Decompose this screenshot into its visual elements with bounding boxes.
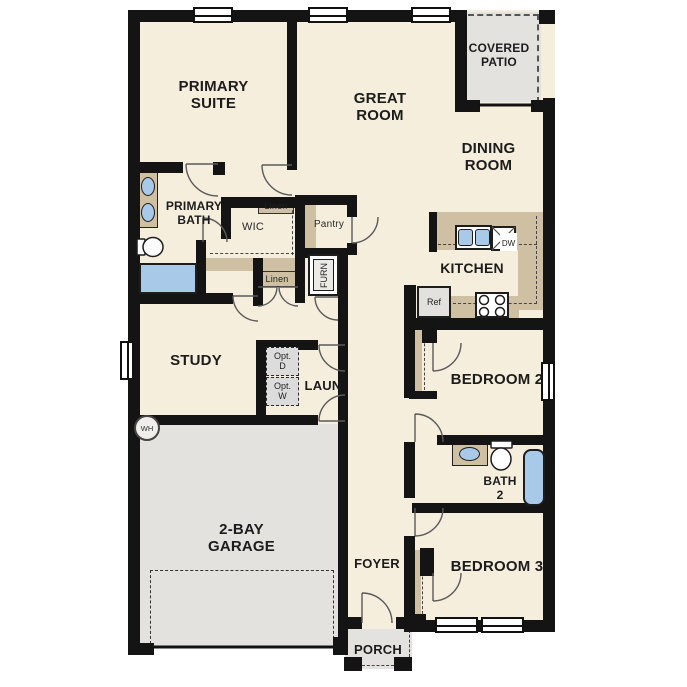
refrigerator-icon: Ref — [417, 286, 451, 318]
wall — [531, 100, 555, 112]
room-label-foyer: FOYER — [350, 556, 404, 571]
wall — [404, 285, 416, 330]
wic-rod-dashed — [292, 205, 293, 255]
room-label-great-room: GREAT ROOM — [348, 90, 412, 125]
window — [481, 617, 524, 633]
wall — [213, 162, 225, 175]
wall — [344, 657, 362, 671]
room-label-bath2: BATH 2 — [479, 475, 521, 503]
room-label-bedroom2: BEDROOM 2 — [427, 371, 567, 388]
dishwasher-label: DW — [500, 233, 517, 251]
wall — [408, 614, 426, 622]
room-label-wic: WIC — [234, 221, 272, 234]
water-heater-label: WH — [141, 424, 154, 433]
sink-icon — [141, 177, 155, 196]
room-label-primary-suite: PRIMARY SUITE — [161, 78, 266, 113]
room-label-garage: 2-BAY GARAGE — [194, 521, 289, 556]
optional-washer-label: Opt. W — [271, 382, 295, 401]
garage-door-dashed-area — [150, 570, 334, 644]
wall — [539, 10, 555, 24]
linen2-label: Linen — [256, 274, 298, 284]
pantry-label: Pantry — [305, 219, 353, 231]
room-label-laundry: LAUN — [300, 378, 346, 393]
linen1-label: Linen — [258, 201, 294, 211]
optional-washer: Opt. W — [266, 377, 299, 406]
wic-shelf-wall — [198, 258, 298, 271]
room-label-study: STUDY — [150, 352, 242, 369]
porch-dashed-right — [409, 630, 410, 657]
furnace-icon: FURN — [308, 254, 339, 296]
wall — [347, 243, 357, 255]
water-heater-icon: WH — [134, 415, 160, 441]
sink-basin-icon — [458, 229, 473, 246]
kitchen-counter-right — [518, 250, 543, 310]
wall — [256, 340, 266, 425]
room-label-primary-bath: PRIMARY BATH — [153, 200, 235, 228]
wall — [287, 22, 297, 170]
wall — [394, 657, 412, 671]
wall — [455, 100, 480, 112]
wall — [422, 322, 437, 343]
refrigerator-label: Ref — [427, 297, 441, 307]
room-label-porch: PORCH — [351, 642, 405, 657]
wall — [404, 442, 415, 498]
window — [411, 7, 451, 23]
wall — [128, 643, 154, 655]
wall — [409, 391, 437, 399]
optional-dryer: Opt. D — [266, 347, 299, 376]
wall — [404, 620, 555, 632]
porch-dashed-bottom — [362, 665, 394, 666]
wall — [128, 162, 183, 173]
window — [193, 7, 233, 23]
stove-icon — [475, 292, 509, 318]
wall — [347, 195, 357, 217]
room-label-kitchen: KITCHEN — [428, 260, 516, 276]
window — [308, 7, 348, 23]
sink-icon — [459, 447, 480, 461]
bathtub-icon — [139, 263, 197, 294]
room-label-bedroom3: BEDROOM 3 — [427, 558, 567, 575]
wall — [338, 250, 348, 643]
wall — [404, 318, 415, 398]
wic-rod-dashed-bottom — [210, 253, 294, 254]
room-label-covered-patio: COVERED PATIO — [457, 42, 541, 70]
wall — [429, 212, 437, 252]
sink-basin-icon — [475, 229, 490, 246]
counter-dashed-right — [536, 216, 537, 304]
wall — [128, 10, 140, 655]
window — [120, 341, 134, 380]
bathtub-icon — [523, 449, 545, 506]
wall — [128, 293, 233, 304]
room-label-dining-room: DINING ROOM — [452, 140, 525, 175]
optional-dryer-label: Opt. D — [271, 352, 295, 371]
wall — [404, 536, 415, 620]
window — [435, 617, 478, 633]
floor-plan: Ref FURN WH Opt. D Opt. W — [0, 0, 687, 687]
furnace-label: FURN — [319, 263, 329, 288]
wall — [437, 435, 555, 445]
wall — [196, 240, 206, 298]
